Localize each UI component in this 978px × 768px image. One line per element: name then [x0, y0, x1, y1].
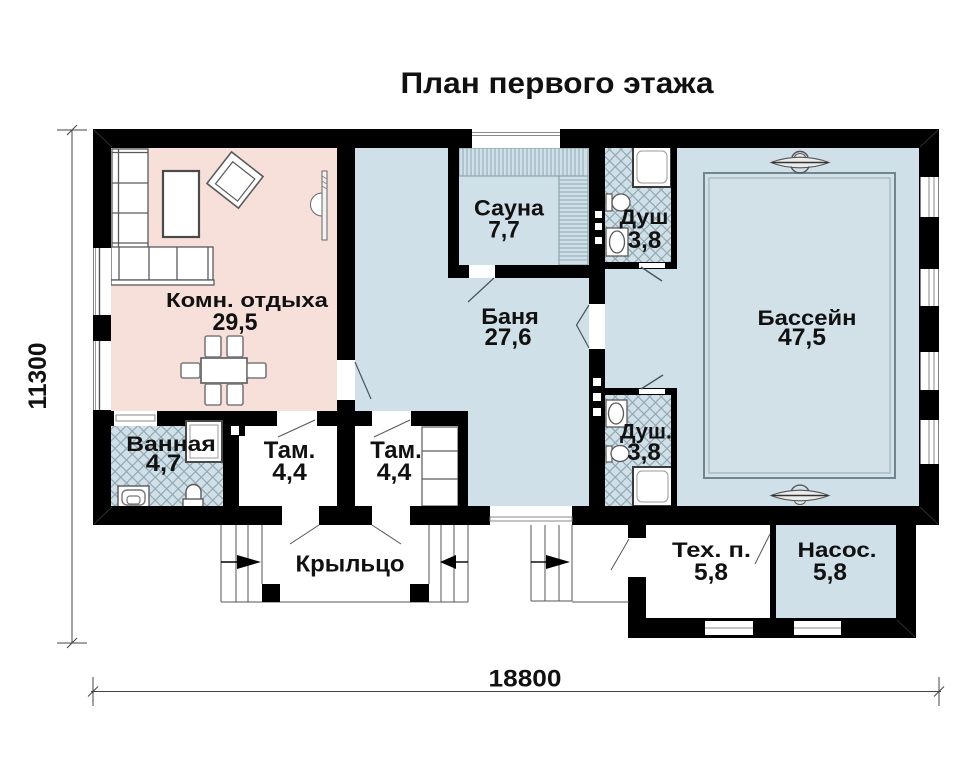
svg-text:Душ: Душ	[620, 206, 669, 229]
svg-text:27,6: 27,6	[485, 324, 532, 351]
svg-text:18800: 18800	[489, 666, 562, 693]
svg-text:4,4: 4,4	[272, 459, 307, 486]
svg-text:5,8: 5,8	[694, 559, 728, 586]
svg-text:47,5: 47,5	[778, 324, 826, 351]
svg-text:29,5: 29,5	[213, 309, 258, 336]
svg-text:5,8: 5,8	[813, 559, 847, 586]
svg-text:4,7: 4,7	[146, 450, 182, 477]
svg-text:3,8: 3,8	[627, 439, 661, 466]
svg-text:План первого этажа: План первого этажа	[401, 67, 714, 100]
svg-text:Крыльцо: Крыльцо	[296, 551, 405, 577]
svg-text:3,8: 3,8	[628, 227, 662, 254]
svg-text:7,7: 7,7	[488, 217, 520, 244]
svg-text:4,4: 4,4	[377, 459, 412, 486]
svg-text:11300: 11300	[24, 343, 52, 410]
